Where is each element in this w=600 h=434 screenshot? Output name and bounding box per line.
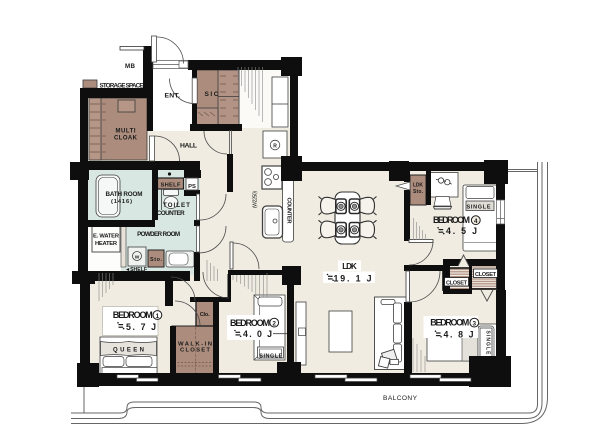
svg-text:R: R — [273, 143, 277, 149]
svg-text:Sto.: Sto. — [413, 189, 424, 195]
svg-text:E. WATER: E. WATER — [93, 233, 120, 239]
svg-text:BEDROOM: BEDROOM — [113, 310, 153, 320]
svg-text:COUNTER: COUNTER — [286, 198, 292, 225]
svg-text:BEDROOM: BEDROOM — [430, 317, 469, 327]
svg-text:POWDER ROOM: POWDER ROOM — [137, 231, 180, 238]
svg-text:MB: MB — [125, 63, 136, 70]
svg-text:MULTI: MULTI — [116, 129, 136, 135]
svg-text:ENT.: ENT. — [165, 92, 181, 99]
svg-text:STORAGE SPACE: STORAGE SPACE — [100, 83, 144, 90]
svg-text:LDK: LDK — [413, 183, 423, 189]
svg-text:CLOAK: CLOAK — [114, 136, 138, 142]
svg-text:CLOSET: CLOSET — [180, 347, 210, 353]
svg-text:5. 7 J: 5. 7 J — [126, 322, 156, 332]
svg-text:4: 4 — [474, 218, 478, 225]
svg-text:BATH ROOM: BATH ROOM — [106, 191, 143, 198]
svg-text:3: 3 — [473, 320, 477, 327]
svg-text:QUEEN: QUEEN — [113, 348, 144, 354]
svg-text:4. 0 J: 4. 0 J — [243, 329, 272, 339]
svg-text:2: 2 — [272, 320, 276, 327]
svg-text:HEATER: HEATER — [95, 241, 118, 247]
svg-text:PS: PS — [188, 184, 196, 190]
svg-text:HALL: HALL — [180, 143, 197, 150]
svg-text:W: W — [135, 254, 140, 260]
svg-text:SIC: SIC — [205, 91, 219, 98]
svg-text:SINGLE: SINGLE — [467, 205, 491, 211]
svg-text:(1416): (1416) — [111, 199, 132, 205]
svg-text:COUNTER: COUNTER — [157, 210, 185, 217]
svg-text:SHELF: SHELF — [161, 182, 181, 188]
svg-text:LDK: LDK — [342, 262, 357, 271]
svg-text:CLOSET: CLOSET — [446, 280, 468, 286]
svg-text:(W2250): (W2250) — [253, 191, 259, 208]
svg-text:Clo.: Clo. — [200, 312, 210, 318]
svg-text:SINGLE: SINGLE — [259, 353, 282, 359]
svg-text:BEDROOM: BEDROOM — [230, 318, 270, 328]
svg-text:CLOSET: CLOSET — [475, 272, 497, 278]
svg-text:BEDROOM: BEDROOM — [433, 215, 470, 225]
svg-text:1: 1 — [156, 313, 160, 320]
svg-text:Sto.: Sto. — [150, 257, 163, 263]
svg-text:TOILET: TOILET — [163, 202, 190, 209]
svg-text:BALCONY: BALCONY — [383, 395, 418, 402]
svg-text:4. 5 J: 4. 5 J — [446, 226, 477, 236]
svg-text:SINGLE: SINGLE — [484, 331, 490, 356]
svg-text:◄SHELF: ◄SHELF — [125, 267, 147, 273]
svg-text:4. 8 J: 4. 8 J — [444, 330, 474, 340]
